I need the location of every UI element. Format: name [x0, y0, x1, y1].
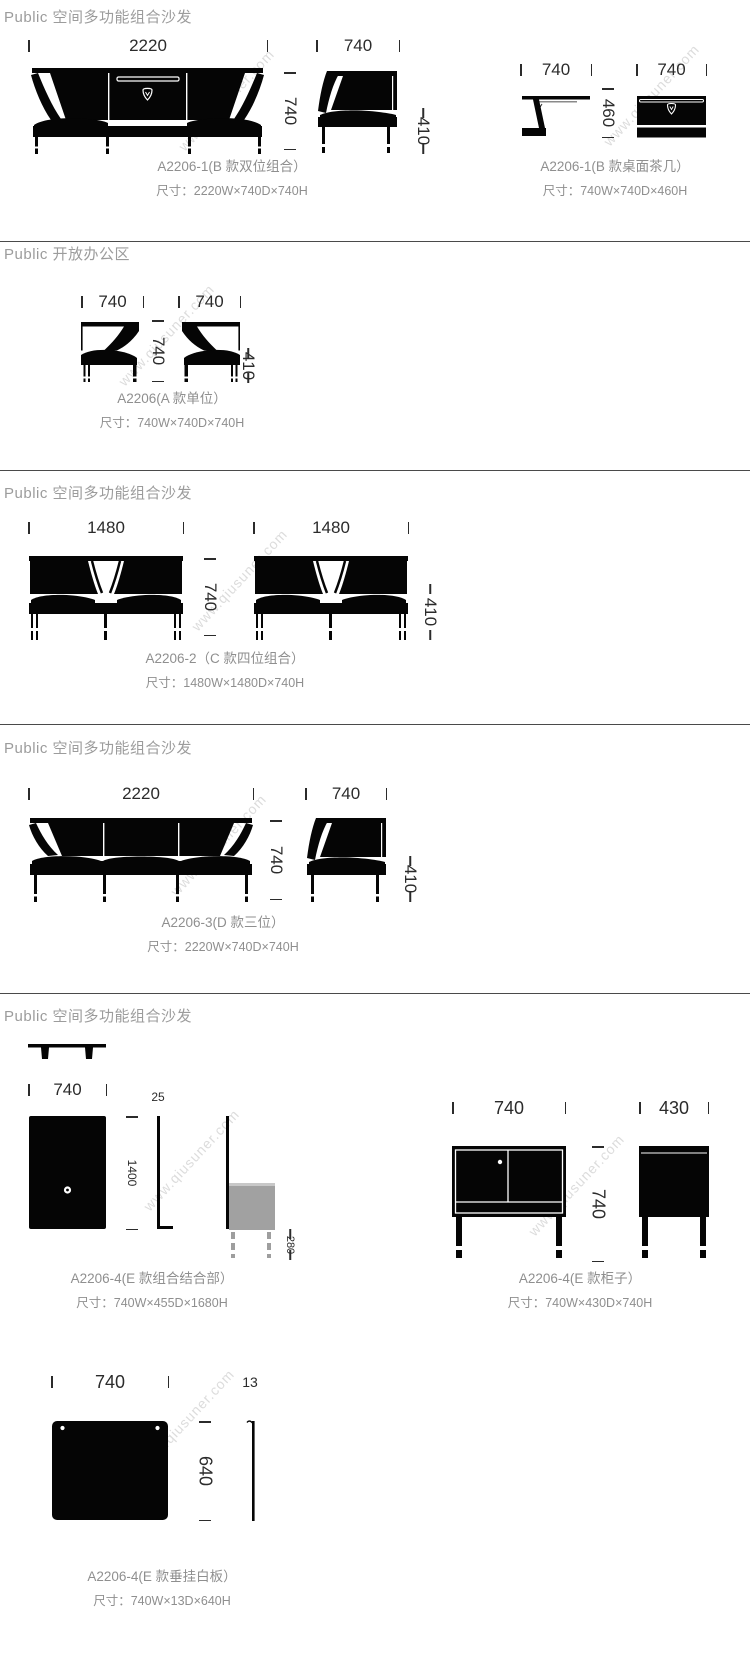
dim-tick: [422, 144, 424, 154]
chair-left-drawing: [81, 322, 141, 382]
section-2-header: Public 开放办公区: [4, 243, 130, 264]
product-name: A2206-3(D 款三位）: [53, 914, 393, 931]
dim-leg-height: 280: [280, 1229, 300, 1260]
product-size: 尺寸：740W×455D×1680H: [20, 1295, 284, 1311]
product-caption: A2206-4(E 款垂挂白板） 尺寸：740W×13D×640H: [12, 1568, 312, 1609]
dim-tick: [199, 1520, 211, 1522]
cabinet-front-drawing: [452, 1146, 566, 1260]
dim-cabinet-depth: 430: [639, 1098, 709, 1118]
sofa-side-view-drawing: [317, 71, 399, 153]
dim-sofa3-seat-height: 410: [400, 856, 420, 902]
whiteboard-front-drawing: [52, 1421, 168, 1520]
panel-side-pole: [157, 1116, 160, 1228]
dim-chair1-width: 740: [81, 292, 144, 312]
product-name: A2206(A 款单位）: [32, 390, 312, 407]
product-size: 尺寸：740W×13D×640H: [12, 1593, 312, 1609]
whiteboard-side-drawing: [244, 1416, 258, 1522]
dim-tick: [591, 64, 593, 76]
dim-tick: [253, 788, 255, 800]
dim-tick: [284, 149, 296, 151]
section-divider: [0, 724, 750, 725]
dim-panel-height: 1400: [122, 1116, 142, 1230]
chair-right-drawing: [180, 322, 240, 382]
dim-table-height: 460: [598, 88, 618, 138]
dim-tick: [602, 88, 614, 90]
product-size: 尺寸：1480W×1480D×740H: [55, 675, 395, 691]
dim-tick: [565, 1102, 567, 1114]
dim-tick: [204, 558, 216, 560]
dim-sofa4-depth: 740: [200, 558, 220, 636]
sofa-two-seat-with-table-drawing: [30, 68, 265, 154]
cabinet-box-top-edge: [229, 1183, 275, 1186]
section-5-header: Public 空间多功能组合沙发: [4, 1005, 192, 1026]
dim-tick: [602, 137, 614, 139]
product-name: A2206-4(E 款柜子）: [410, 1270, 750, 1287]
dim-chair-depth: 740: [148, 320, 168, 382]
combo-side-cabinet-box: [229, 1183, 275, 1230]
product-name: A2206-1(B 款双位组合）: [62, 158, 402, 175]
dim-tick: [270, 899, 282, 901]
dim-sofa4-width-2: 1480: [253, 518, 409, 538]
cabinet-side-drawing: [639, 1146, 709, 1260]
product-size: 尺寸：740W×740D×460H: [445, 183, 750, 199]
panel-side-foot: [157, 1226, 173, 1229]
dim-board-height: 640: [195, 1421, 215, 1521]
dim-board-thickness: 13: [236, 1374, 264, 1390]
dim-chair-seat-height: 410: [238, 348, 258, 383]
product-name: A2206-4(E 款垂挂白板）: [12, 1568, 312, 1585]
dim-tick: [168, 1376, 170, 1388]
product-caption: A2206(A 款单位） 尺寸：740W×740D×740H: [32, 390, 312, 431]
dim-tick: [152, 320, 164, 322]
dim-tick: [270, 820, 282, 822]
dim-sofa2-depth: 740: [280, 72, 300, 150]
dim-tick: [409, 892, 411, 902]
cabinet-dashed-leg: [231, 1232, 235, 1258]
dim-tick: [106, 1084, 108, 1096]
section-3-header: Public 空间多功能组合沙发: [4, 482, 192, 503]
panel-front-drawing: [29, 1116, 106, 1229]
product-size: 尺寸：740W×740D×740H: [32, 415, 312, 431]
product-size: 尺寸：2220W×740D×740H: [53, 939, 393, 955]
dim-tick: [399, 40, 401, 52]
combo-top-view-drawing: [28, 1044, 106, 1062]
product-caption: A2206-3(D 款三位） 尺寸：2220W×740D×740H: [53, 914, 393, 955]
dim-tick: [429, 584, 431, 594]
dim-tick: [152, 381, 164, 383]
dim-tick: [143, 296, 145, 308]
dim-cabinet-width: 740: [452, 1098, 566, 1118]
dim-board-width: 740: [51, 1372, 169, 1392]
dim-sofa4-width-1: 1480: [28, 518, 184, 538]
section-divider: [0, 470, 750, 471]
dim-sofa4-seat-height: 410: [420, 584, 440, 640]
section-divider: [0, 241, 750, 242]
product-caption: A2206-2（C 款四位组合） 尺寸：1480W×1480D×740H: [55, 650, 395, 691]
sofa-back-to-back-drawing-1: [28, 556, 184, 640]
dim-sofa3-width: 2220: [28, 784, 254, 804]
table-side-view-drawing: [522, 96, 590, 138]
dim-sofa3-depth: 740: [266, 820, 286, 900]
product-caption: A2206-4(E 款组合结合部） 尺寸：740W×455D×1680H: [20, 1270, 284, 1311]
dim-panel-width: 740: [28, 1080, 107, 1100]
dim-table-front-width: 740: [636, 60, 707, 80]
product-name: A2206-4(E 款组合结合部）: [20, 1270, 284, 1287]
section-divider: [0, 993, 750, 994]
dim-sofa3-side-width: 740: [305, 784, 387, 804]
dim-tick: [429, 630, 431, 640]
sofa-back-to-back-drawing-2: [253, 556, 409, 640]
product-size: 尺寸：740W×430D×740H: [410, 1295, 750, 1311]
dim-sofa2-width: 2220: [28, 36, 268, 56]
dim-tick: [126, 1116, 138, 1118]
dim-panel-thickness: 25: [146, 1090, 170, 1104]
dim-cabinet-height: 740: [588, 1146, 608, 1262]
sofa-three-seat-drawing: [28, 818, 254, 902]
dim-tick: [183, 522, 185, 534]
product-name: A2206-2（C 款四位组合）: [55, 650, 395, 667]
dim-tick: [408, 522, 410, 534]
dim-tick: [126, 1229, 138, 1231]
dim-chair2-width: 740: [178, 292, 241, 312]
dim-table-side-width: 740: [520, 60, 592, 80]
section-1-header: Public 空间多功能组合沙发: [4, 6, 192, 27]
dim-tick: [592, 1261, 604, 1263]
dim-tick: [267, 40, 269, 52]
product-caption: A2206-4(E 款柜子） 尺寸：740W×430D×740H: [410, 1270, 750, 1311]
section-4-header: Public 空间多功能组合沙发: [4, 737, 192, 758]
dim-tick: [706, 64, 708, 76]
sofa3-side-view-drawing: [306, 818, 388, 902]
dim-sofa2-side-width: 740: [316, 36, 400, 56]
product-caption: A2206-1(B 款双位组合） 尺寸：2220W×740D×740H: [62, 158, 402, 199]
dim-tick: [199, 1421, 211, 1423]
product-name: A2206-1(B 款桌面茶几）: [445, 158, 750, 175]
spec-sheet: Public 空间多功能组合沙发 www.qiusuner.com www.qi…: [0, 0, 750, 1659]
dim-tick: [289, 1250, 291, 1260]
dim-tick: [240, 296, 242, 308]
dim-tick: [708, 1102, 710, 1114]
cabinet-dashed-leg: [267, 1232, 271, 1258]
dim-tick: [386, 788, 388, 800]
product-caption: A2206-1(B 款桌面茶几） 尺寸：740W×740D×460H: [445, 158, 750, 199]
dim-tick: [592, 1146, 604, 1148]
dim-tick: [284, 72, 296, 74]
product-size: 尺寸：2220W×740D×740H: [62, 183, 402, 199]
dim-sofa2-seat-height: 410: [413, 108, 433, 154]
table-front-view-drawing: [637, 96, 706, 138]
dim-tick: [247, 373, 249, 383]
dim-tick: [204, 635, 216, 637]
